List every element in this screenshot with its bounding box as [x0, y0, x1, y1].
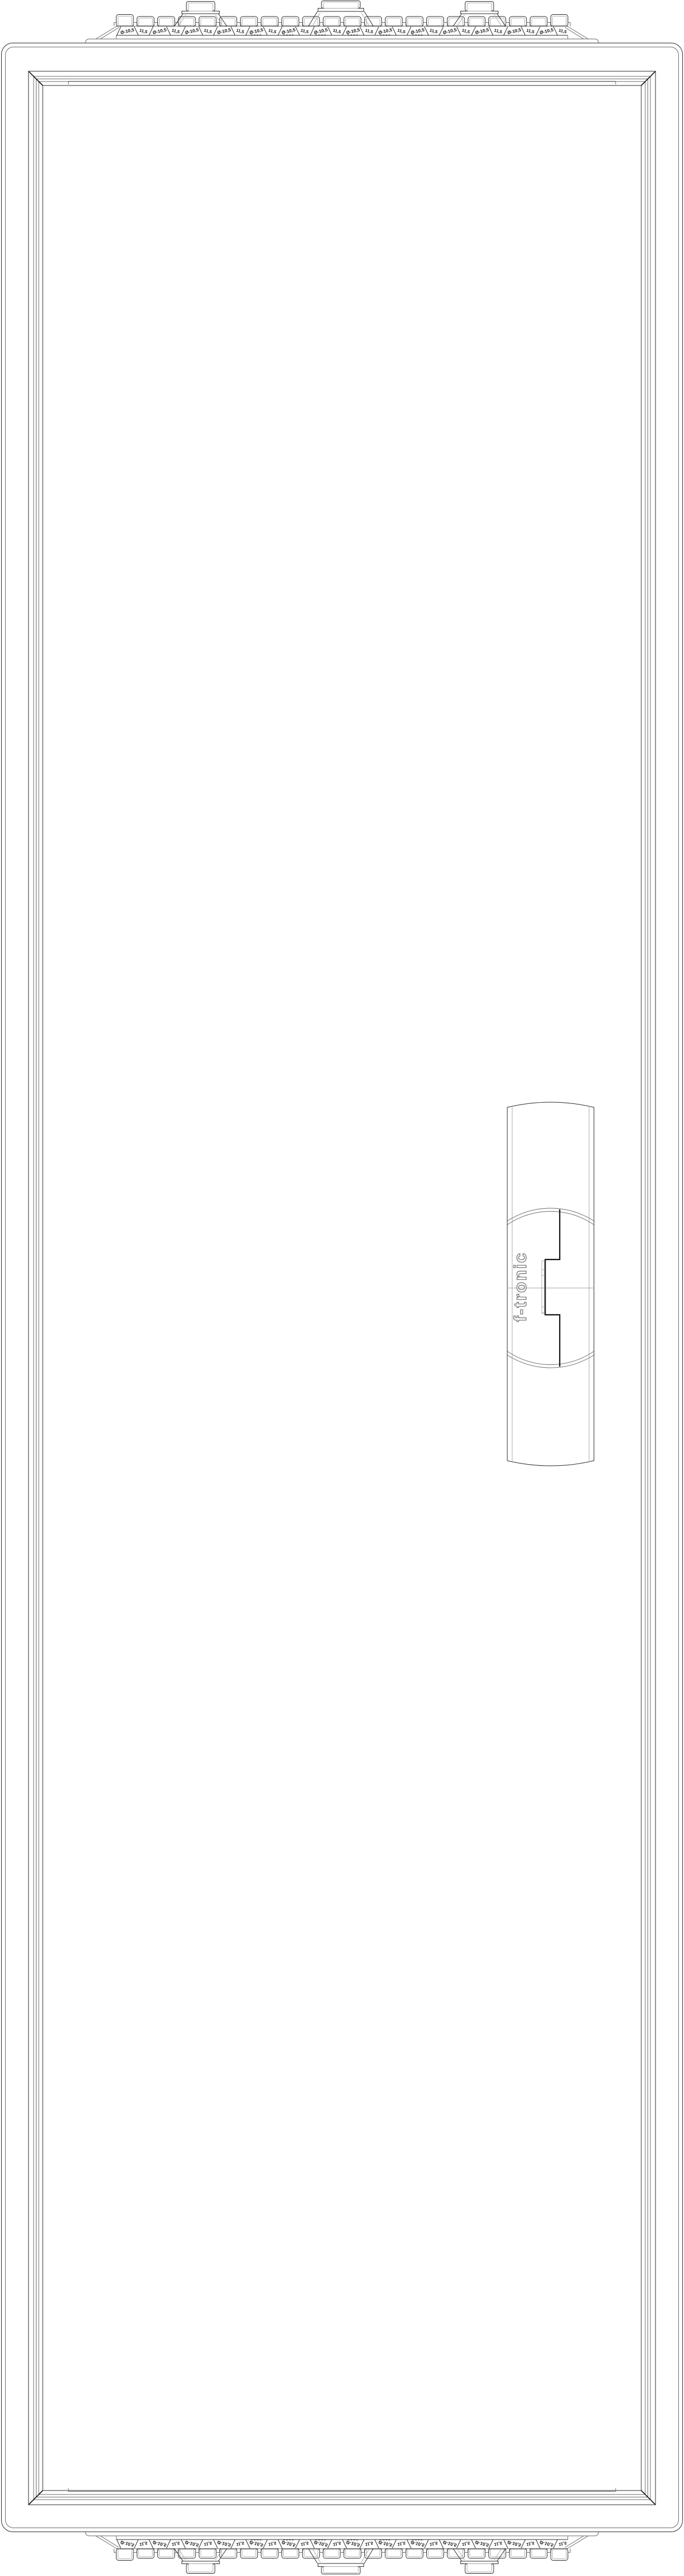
knockout-cap: [137, 17, 154, 26]
cap-connector-tab: [154, 2549, 157, 2553]
latch-slot: [542, 1261, 544, 1314]
knockout-cap: [261, 2549, 278, 2558]
knockout-label-primary: Ø-10,5: [475, 2540, 490, 2548]
cap-connector-tab: [444, 23, 447, 27]
latch-slot-ticks: [542, 1270, 544, 1313]
knockout-label-cell: Ø-10,511,5: [149, 2540, 181, 2548]
knockout-label-secondary: 11,5: [332, 28, 341, 35]
knockout-cap: [406, 17, 423, 26]
knockout-cap: [220, 17, 237, 26]
knockout-label-cell: Ø-10,511,5: [214, 27, 245, 35]
knockout-label-cell: Ø-10,511,5: [310, 2540, 341, 2548]
knockout-label-cell: Ø-10,511,5: [471, 2540, 503, 2548]
cap-connector-tab: [196, 23, 199, 27]
cap-connector-tab: [258, 23, 261, 27]
body-inner-edge: [6, 47, 679, 2528]
flange-strip-bottom: Ø-10,511,5Ø-10,511,5Ø-10,511,5Ø-10,511,5…: [85, 2532, 598, 2574]
knockout-label-cell: Ø-10,511,5: [439, 27, 471, 35]
knockout-label-cell: Ø-10,511,5: [278, 2540, 310, 2548]
knockout-cap: [282, 17, 299, 26]
knockout-label-secondary: 11,5: [494, 28, 503, 35]
knockout-label-primary: Ø-10,5: [442, 2540, 457, 2548]
knockout-cap: [282, 2549, 299, 2558]
knockout-cap: [510, 17, 527, 26]
cap-connector-tab: [154, 23, 157, 27]
knockout-cap: [447, 2549, 465, 2558]
knockout-cap: [365, 17, 382, 26]
cap-connector-tab: [361, 2549, 364, 2553]
knockout-label-primary: Ø-10,5: [152, 27, 167, 35]
knockout-label-primary: Ø-10,5: [185, 2540, 199, 2548]
flange-end-ticks: [116, 2536, 568, 2540]
knockout-dome-small: [453, 2, 506, 27]
knockout-cap: [158, 17, 175, 26]
knockout-label-secondary: 11,5: [461, 2541, 470, 2548]
cap-connector-tab: [196, 2549, 199, 2553]
knockout-label-cell: Ø-10,511,5: [278, 27, 310, 35]
knockout-label-cell: Ø-10,511,5: [343, 27, 374, 35]
knockout-label-secondary: 11,5: [235, 28, 245, 35]
knockout-label-primary: Ø-10,5: [507, 27, 522, 35]
cap-connector-tab: [340, 2549, 344, 2553]
cap-connector-tab: [423, 23, 426, 27]
knockout-label-cell: Ø-10,511,5: [375, 27, 406, 35]
knockout-label-cell: Ø-10,511,5: [117, 2540, 148, 2548]
knockout-cap: [199, 2549, 216, 2558]
knockout-cap: [551, 2549, 570, 2561]
knockout-label-primary: Ø-10,5: [120, 2540, 135, 2548]
knockout-cap: [488, 17, 506, 26]
cap-connector-tab: [444, 2549, 447, 2553]
knockout-label-secondary: 11,5: [397, 2541, 406, 2548]
cap-connector-tab: [402, 23, 406, 27]
door-inner-panel-edge-bottom: [68, 2488, 616, 2492]
knockout-cap: [178, 2549, 196, 2558]
knockout-label-secondary: 11,5: [300, 2541, 310, 2548]
knockout-label-primary: Ø-10,5: [378, 27, 393, 35]
knockout-label-cell: Ø-10,511,5: [310, 27, 341, 35]
knockout-cap: [385, 2549, 402, 2558]
knockout-cap: [114, 2549, 133, 2561]
knockout-label-primary: Ø-10,5: [313, 2540, 328, 2548]
cap-connector-tab: [133, 23, 137, 27]
knockout-label-secondary: 11,5: [397, 28, 406, 35]
knockout-label-cell: Ø-10,511,5: [246, 2540, 277, 2548]
cap-connector-tab: [340, 23, 344, 27]
cap-connector-tab: [527, 2549, 530, 2553]
knockout-label-primary: Ø-10,5: [475, 27, 490, 35]
knockout-cap: [530, 2549, 547, 2558]
knockout-cap: [468, 2549, 485, 2558]
knockout-label-secondary: 11,5: [429, 28, 438, 35]
cap-connector-tab: [258, 2549, 261, 2553]
knockout-label-secondary: 11,5: [203, 28, 213, 35]
cap-connector-tab: [320, 2549, 323, 2553]
knockout-cap: [344, 17, 361, 26]
knockout-label-cell: Ø-10,511,5: [504, 27, 535, 35]
knockout-cap: [344, 2549, 361, 2558]
knockout-cap: [261, 17, 278, 26]
cap-connector-tab: [547, 2549, 551, 2553]
knockout-label-primary: Ø-10,5: [539, 27, 554, 35]
knockout-label-secondary: 11,5: [171, 2541, 180, 2548]
door-handle: f-tronic: [471, 1102, 630, 1466]
knockout-label-primary: Ø-10,5: [249, 27, 264, 35]
knockout-label-primary: Ø-10,5: [217, 27, 231, 35]
knockout-label-secondary: 11,5: [429, 2541, 438, 2548]
cap-connector-tab: [320, 23, 323, 27]
knockout-label-secondary: 11,5: [268, 2541, 277, 2548]
cap-connector-tab: [216, 23, 219, 27]
cap-connector-tab: [237, 2549, 241, 2553]
cap-connector-tab: [278, 2549, 282, 2553]
knockout-label-primary: Ø-10,5: [281, 27, 296, 35]
knockout-cap: [241, 17, 258, 26]
knockout-label-primary: Ø-10,5: [249, 2540, 264, 2548]
knockout-cap: [323, 17, 340, 26]
knockout-cap: [427, 2549, 444, 2558]
knockout-cap: [241, 2549, 258, 2558]
cap-connector-tab: [299, 23, 303, 27]
cap-connector-tab: [485, 2549, 488, 2553]
knockout-cap: [137, 2549, 154, 2558]
knockout-cap: [385, 17, 402, 26]
knockout-label-cell: Ø-10,511,5: [375, 2540, 406, 2548]
knockout-label-secondary: 11,5: [526, 2541, 535, 2548]
knockout-cap: [158, 2549, 175, 2558]
knockout-label-primary: Ø-10,5: [410, 2540, 425, 2548]
knockout-label-secondary: 11,5: [268, 28, 277, 35]
knockout-label-cell: Ø-10,511,5: [536, 27, 567, 35]
knockout-label-primary: Ø-10,5: [185, 27, 199, 35]
knockout-label-secondary: 11,5: [558, 28, 567, 35]
enclosure-body: [2, 43, 683, 2532]
cap-connector-tab: [402, 2549, 406, 2553]
knockout-cap: [323, 2549, 340, 2558]
knockout-label-cell: Ø-10,511,5: [246, 27, 277, 35]
knockout-label-secondary: 11,5: [365, 28, 374, 35]
cap-connector-tab: [485, 23, 488, 27]
enclosure-drawing: Ø-10,511,5Ø-10,511,5Ø-10,511,5Ø-10,511,5…: [0, 0, 684, 2576]
knockout-cap: [488, 2549, 506, 2558]
knockout-label-cell: Ø-10,511,5: [343, 2540, 374, 2548]
knockout-label-secondary: 11,5: [139, 2541, 148, 2548]
cap-connector-tab: [506, 23, 510, 27]
body-outer-edge: [2, 43, 683, 2532]
knockout-label-cell: Ø-10,511,5: [536, 2540, 567, 2548]
knockout-label-cell: Ø-10,511,5: [471, 27, 503, 35]
flange-base-edge: [85, 2532, 598, 2536]
knockout-cap: [178, 17, 196, 26]
flange-strip-top: Ø-10,511,5Ø-10,511,5Ø-10,511,5Ø-10,511,5…: [85, 1, 598, 43]
knockout-label-cell: Ø-10,511,5: [181, 2540, 213, 2548]
cap-connector-tab: [361, 23, 364, 27]
knockout-label-secondary: 11,5: [558, 2541, 567, 2548]
cap-connector-tab: [547, 23, 551, 27]
cap-connector-tab: [382, 2549, 385, 2553]
knockout-label-cell: Ø-10,511,5: [407, 27, 438, 35]
knockout-cap: [447, 17, 465, 26]
cap-connector-tab: [423, 2549, 426, 2553]
knockout-label-primary: Ø-10,5: [507, 2540, 522, 2548]
knockout-label-secondary: 11,5: [139, 28, 148, 35]
knockout-cap: [199, 17, 216, 26]
knockout-label-primary: Ø-10,5: [345, 2540, 360, 2548]
knockout-dome-small: [453, 2549, 506, 2574]
knockout-label-secondary: 11,5: [365, 2541, 374, 2548]
cap-connector-tab: [133, 2549, 137, 2553]
knockout-label-cell: Ø-10,511,5: [214, 2540, 245, 2548]
knockout-label-primary: Ø-10,5: [442, 27, 457, 35]
cap-connector-tab: [216, 2549, 219, 2553]
knockout-label-secondary: 11,5: [461, 28, 470, 35]
knockout-label-primary: Ø-10,5: [345, 27, 360, 35]
knockout-cap: [365, 2549, 382, 2558]
cap-connector-tab: [278, 23, 282, 27]
knockout-cap: [406, 2549, 423, 2558]
knockout-cap: [468, 17, 485, 26]
cap-connector-tab: [527, 23, 530, 27]
knockout-label-cell: Ø-10,511,5: [439, 2540, 471, 2548]
knockout-label-cell: Ø-10,511,5: [407, 2540, 438, 2548]
knockout-label-cell: Ø-10,511,5: [117, 27, 148, 35]
knockout-label-primary: Ø-10,5: [217, 2540, 231, 2548]
knockout-label-secondary: 11,5: [494, 2541, 503, 2548]
knockout-cap: [551, 15, 570, 27]
knockout-cap: [220, 2549, 237, 2558]
knockout-label-primary: Ø-10,5: [378, 2540, 393, 2548]
knockout-label-primary: Ø-10,5: [281, 2540, 296, 2548]
brand-logo: f-tronic: [510, 1252, 530, 1322]
knockout-label-primary: Ø-10,5: [410, 27, 425, 35]
cap-connector-tab: [506, 2549, 510, 2553]
cap-connector-tab: [465, 23, 468, 27]
knockout-label-secondary: 11,5: [526, 28, 535, 35]
knockout-label-cell: Ø-10,511,5: [149, 27, 181, 35]
cap-connector-tab: [382, 23, 385, 27]
knockout-label-primary: Ø-10,5: [152, 2540, 167, 2548]
flange-base-edge: [85, 39, 598, 43]
cap-connector-tab: [465, 2549, 468, 2553]
knockout-cap: [114, 15, 133, 27]
knockout-cap: [427, 17, 444, 26]
knockout-label-primary: Ø-10,5: [539, 2540, 554, 2548]
knockout-label-secondary: 11,5: [203, 2541, 213, 2548]
cap-connector-tab: [299, 2549, 303, 2553]
knockout-label-secondary: 11,5: [235, 2541, 245, 2548]
knockout-label-cell: Ø-10,511,5: [181, 27, 213, 35]
knockout-label-secondary: 11,5: [171, 28, 180, 35]
knockout-label-primary: Ø-10,5: [120, 27, 135, 35]
knockout-cap: [510, 2549, 527, 2558]
knockout-label-secondary: 11,5: [300, 28, 310, 35]
cap-connector-tab: [237, 23, 241, 27]
knockout-cap: [530, 17, 547, 26]
knockout-label-cell: Ø-10,511,5: [504, 2540, 535, 2548]
flange-end-ticks: [116, 35, 568, 39]
knockout-label-secondary: 11,5: [332, 2541, 341, 2548]
knockout-label-primary: Ø-10,5: [313, 27, 328, 35]
